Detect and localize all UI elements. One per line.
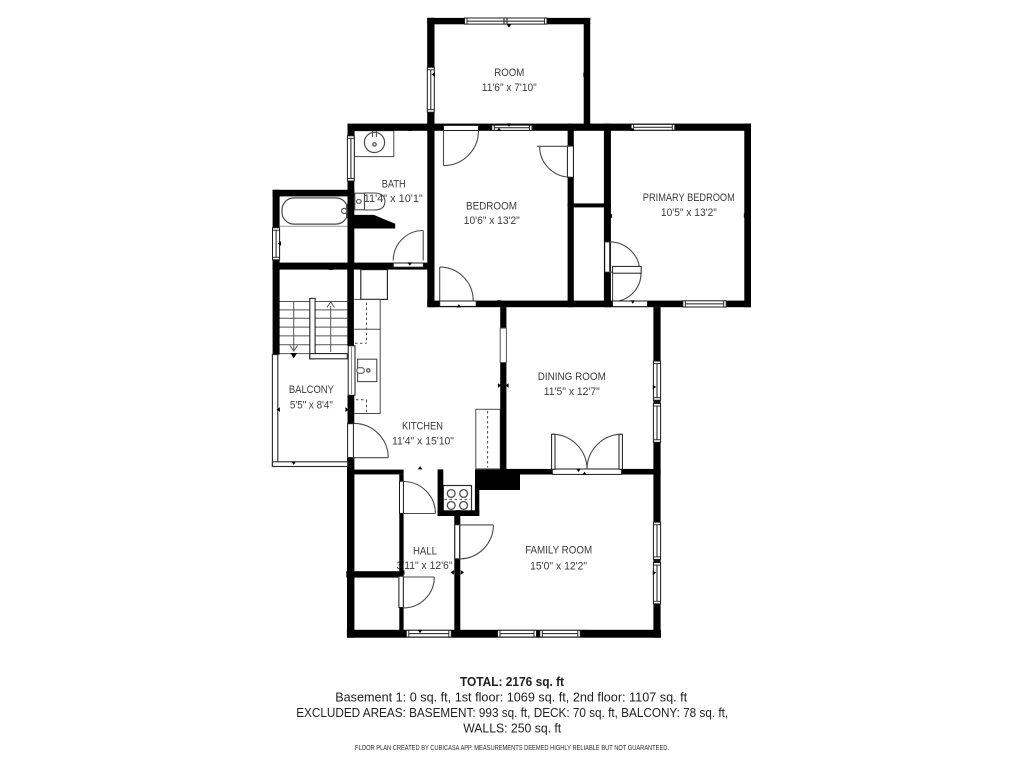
svg-text:BALCONY: BALCONY (289, 384, 334, 396)
svg-text:10'6" x 13'2": 10'6" x 13'2" (464, 215, 520, 227)
svg-text:11'4" x 15'10": 11'4" x 15'10" (392, 436, 454, 448)
svg-text:Basement 1: 0 sq. ft, 1st floo: Basement 1: 0 sq. ft, 1st floor: 1069 sq… (335, 689, 687, 704)
svg-text:BATH: BATH (382, 179, 406, 191)
svg-text:HALL: HALL (413, 545, 437, 557)
svg-text:DINING ROOM: DINING ROOM (538, 371, 606, 383)
svg-text:11'4" x 10'1": 11'4" x 10'1" (364, 193, 423, 205)
svg-text:11'5" x 12'7": 11'5" x 12'7" (544, 386, 600, 398)
svg-text:BEDROOM: BEDROOM (466, 201, 517, 213)
svg-text:11'6" x 7'10": 11'6" x 7'10" (482, 82, 537, 94)
svg-text:ROOM: ROOM (494, 67, 524, 79)
svg-text:5'5" x 8'4": 5'5" x 8'4" (290, 399, 333, 411)
svg-text:FLOOR PLAN CREATED BY CUBICASA: FLOOR PLAN CREATED BY CUBICASA APP. MEAS… (355, 743, 669, 752)
svg-text:TOTAL: 2176 sq. ft: TOTAL: 2176 sq. ft (460, 674, 565, 689)
svg-text:KITCHEN: KITCHEN (402, 421, 443, 433)
svg-text:3'11" x 12'6": 3'11" x 12'6" (397, 560, 453, 572)
svg-text:15'0" x 12'2": 15'0" x 12'2" (530, 560, 587, 572)
svg-text:10'5" x 13'2": 10'5" x 13'2" (661, 207, 717, 219)
svg-text:WALLS: 250 sq. ft: WALLS: 250 sq. ft (463, 721, 561, 736)
svg-text:EXCLUDED AREAS: BASEMENT: 993: EXCLUDED AREAS: BASEMENT: 993 sq. ft, DE… (296, 705, 728, 720)
svg-text:FAMILY ROOM: FAMILY ROOM (525, 545, 592, 557)
svg-text:PRIMARY BEDROOM: PRIMARY BEDROOM (643, 192, 735, 204)
